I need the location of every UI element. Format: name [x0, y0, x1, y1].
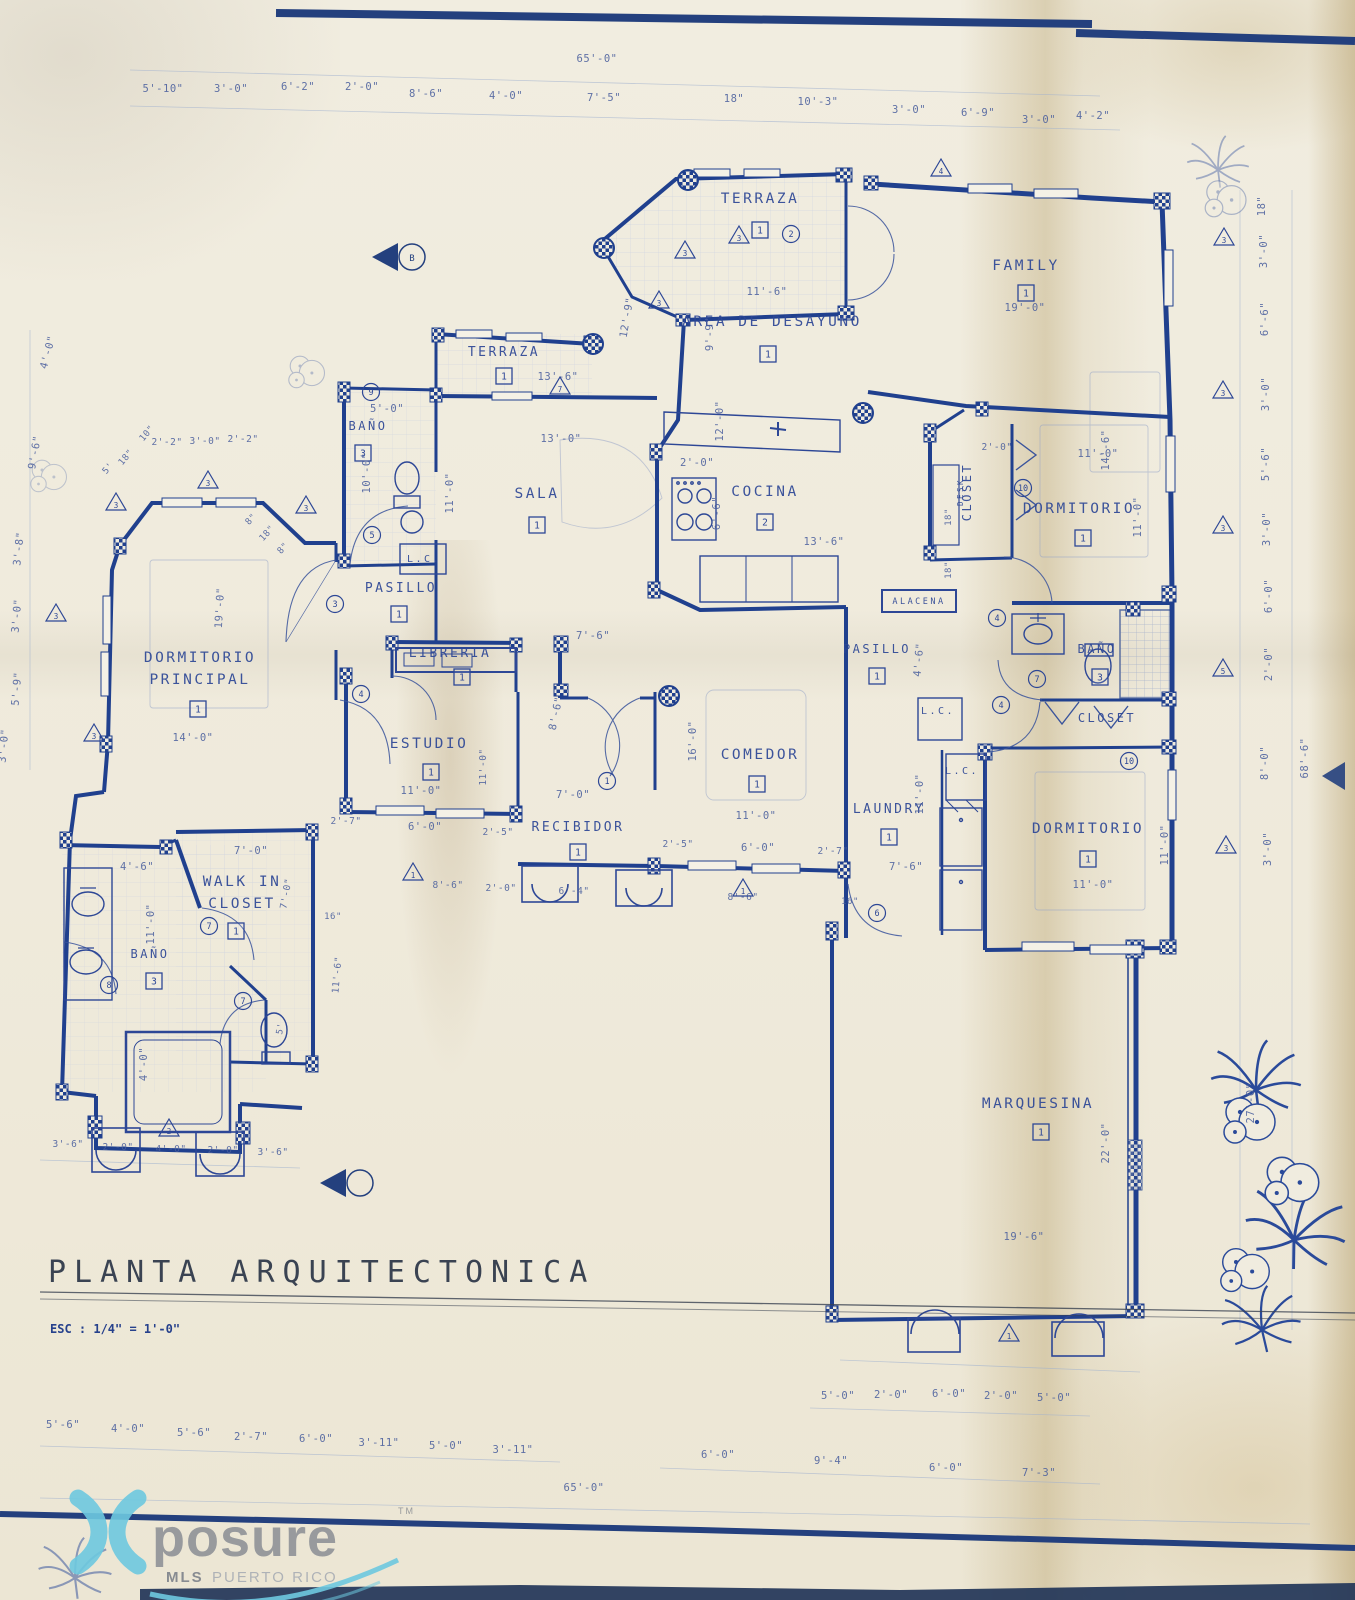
column-marker — [583, 334, 603, 354]
dimension-label: 19'-0" — [213, 587, 227, 629]
dimension-label: 3'-8" — [11, 531, 26, 566]
keynote-triangle-number: 4 — [939, 167, 944, 176]
dimension-label: 11'-0" — [1073, 879, 1114, 891]
room-label: COCINA — [731, 484, 798, 500]
room-label: MARQUESINA — [982, 1096, 1094, 1112]
dimension-label: 6'-0" — [701, 1449, 735, 1461]
stove-icon — [672, 478, 716, 540]
dimension-label: 3'-6" — [257, 1147, 288, 1158]
keynote-triangle-number: 1 — [1007, 1332, 1012, 1341]
keynote-triangle-number: 3 — [304, 504, 309, 513]
keynote-triangle-number: 3 — [92, 732, 97, 741]
dimension-label: 6'-0" — [408, 821, 442, 833]
dimension-label: 65'-0" — [577, 53, 618, 65]
dimension-label: 3'-0" — [10, 598, 25, 633]
room-tag-number: 1 — [396, 610, 402, 621]
room-tag-number: 1 — [765, 350, 771, 361]
page-title: PLANTA ARQUITECTONICA — [48, 1255, 595, 1290]
dimension-label: 18" — [1256, 196, 1268, 216]
dimension-label: 22'-0" — [1100, 1123, 1112, 1164]
dimension-label: 6'-0" — [932, 1388, 966, 1400]
dimension-label: 5'-6" — [177, 1427, 211, 1439]
dimension-label: 2'-5" — [662, 839, 693, 850]
dryer-icon — [940, 870, 982, 930]
keynote-triangle-number: 3 — [1221, 524, 1226, 533]
room-label: PASILLO — [365, 581, 437, 596]
room-tag-number: 1 — [428, 768, 434, 779]
room-tag-number: 1 — [501, 372, 507, 383]
scale-note: ESC : 1/4" = 1'-0" — [50, 1322, 180, 1336]
room-label: COMEDOR — [721, 747, 800, 763]
keynote-triangle-number: 7 — [558, 385, 563, 394]
keynote-circle-number: 7 — [240, 997, 245, 1007]
dimension-label: 19'-6" — [1004, 1231, 1045, 1243]
dimension-label: 11'-0" — [914, 774, 926, 815]
dimension-label: 5'-9" — [10, 671, 25, 706]
keynote-circle-number: 8 — [106, 981, 111, 991]
room-tag-number: 1 — [1080, 534, 1086, 545]
section-letter: B — [409, 254, 414, 264]
room-label: WALK IN — [203, 874, 282, 890]
dimension-label: 12'-0" — [714, 401, 726, 442]
dimension-label: 8'-6" — [409, 88, 443, 100]
column-marker — [853, 403, 873, 423]
dimension-label: 3'-0" — [0, 728, 11, 763]
dimension-label: 6'-9" — [961, 107, 995, 119]
room-label: LIBRERIA — [409, 646, 492, 661]
dimension-label: 18" — [944, 561, 954, 579]
keynote-triangle-number: 3 — [737, 234, 742, 243]
keynote-triangle-number: 3 — [54, 612, 59, 621]
room-tag-number: 3 — [1097, 673, 1103, 684]
room-label: TERRAZA — [468, 345, 540, 360]
dimension-label: 8" — [276, 541, 291, 556]
keynote-circle-number: 10 — [1018, 484, 1028, 494]
keynote-triangle-number: 3 — [114, 501, 119, 510]
dimension-label: 16'-0" — [687, 721, 699, 762]
column-marker — [678, 170, 698, 190]
dimension-label: 3'-0" — [1258, 234, 1270, 268]
dimension-label: 19'-0" — [1005, 302, 1046, 314]
dimension-label: 6'-2" — [281, 81, 315, 93]
room-label: BAÑO — [131, 946, 170, 961]
dimension-label: 8'-6" — [547, 695, 566, 731]
keynote-circle-number: 5 — [369, 531, 374, 541]
room-label: ALACENA — [892, 597, 945, 607]
dimension-label: 13'-0" — [541, 433, 582, 445]
room-label-line2: CLOSET — [208, 896, 275, 912]
keynote-circle-number: 4 — [358, 690, 363, 700]
dimension-label: 2'-0" — [984, 1390, 1018, 1402]
room-tag-number: 1 — [1023, 289, 1029, 300]
dimension-label: 6'-0" — [1263, 579, 1275, 613]
room-label: L.C. — [921, 706, 955, 717]
dimension-label: 10'-3" — [798, 96, 839, 108]
keynote-triangle-number: 2 — [167, 1127, 172, 1136]
dimension-label: 4'-0" — [489, 90, 523, 102]
title-block: PLANTA ARQUITECTONICA ESC : 1/4" = 1'-0" — [40, 1255, 1355, 1336]
dimension-label: 11'-0" — [736, 810, 777, 822]
keynote-circle-number: 2 — [788, 230, 793, 240]
dimension-label: 11'-0" — [478, 748, 489, 785]
dimension-label: 2'-2" — [151, 437, 182, 448]
room-tag-number: 2 — [762, 518, 768, 529]
dimension-label: 3'-0" — [1022, 114, 1056, 126]
dimension-label: 11'-0" — [1078, 448, 1119, 460]
dimension-label: 6'-6" — [1259, 302, 1271, 336]
room-label: SALA — [515, 486, 560, 502]
floor-plan-svg: B TERRAZA1FAMILY1AREA DE DESAYUNO1TERRAZ… — [0, 0, 1355, 1600]
dimension-label: 65'-0" — [564, 1482, 605, 1494]
dimension-label: 5'-0" — [429, 1440, 463, 1452]
dimension-label: 11'-0" — [1132, 497, 1144, 538]
keynote-triangle-number: 1 — [411, 871, 416, 880]
dimension-label: 2'-5" — [482, 827, 513, 838]
keynote-triangle-number: 3 — [1224, 844, 1229, 853]
dimension-label: 8'-6" — [432, 880, 463, 891]
room-label: CLOSET — [1078, 711, 1136, 725]
dimension-label: 9'-4" — [814, 1455, 848, 1467]
room-tag-number: 1 — [757, 226, 763, 237]
dimension-label: 5'-0" — [1037, 1392, 1071, 1404]
room-tag-number: 3 — [151, 977, 157, 988]
dimension-label: 16" — [841, 897, 859, 907]
keynote-circle-number: 3 — [332, 600, 337, 610]
sheet-border-top — [276, 13, 1355, 41]
dimension-label: 6'-0" — [741, 842, 775, 854]
dimension-label: 2'-7" — [330, 816, 361, 827]
room-tag-number: 1 — [534, 521, 540, 532]
keynote-triangle-number: 3 — [683, 249, 688, 258]
keynote-triangle-number: 5 — [1221, 667, 1226, 676]
keynote-circle-number: 1 — [604, 777, 609, 787]
room-label: L.C. — [407, 554, 441, 565]
dimension-label: 8" — [244, 512, 259, 527]
keynote-triangle-number: 3 — [657, 299, 662, 308]
dimension-label: 7'-3" — [1022, 1467, 1056, 1479]
room-label: FAMILY — [992, 258, 1059, 274]
dimension-label: 2'-7" — [234, 1431, 268, 1443]
dimension-label: 2'-0" — [102, 1142, 133, 1153]
dimension-label: 18" — [117, 448, 136, 468]
sink-icon — [1024, 624, 1052, 644]
xposure-x-icon — [78, 1498, 99, 1566]
dimension-label: 10'-0" — [361, 453, 373, 494]
dimension-label: 5' — [275, 1022, 287, 1035]
dimension-label: 5'-0" — [370, 403, 404, 415]
dimension-label: 12'-9" — [618, 296, 637, 338]
room-tag-number: 1 — [233, 927, 239, 938]
dimension-label: 68'-6" — [1299, 738, 1311, 779]
dimension-label: 7'-0" — [556, 789, 590, 801]
dimension-label: 4'-6" — [120, 861, 154, 873]
dimension-label: 6'-0" — [929, 1462, 963, 1474]
dimension-label: 11'-6" — [747, 286, 788, 298]
dimension-label: 27'-0" — [1245, 1083, 1257, 1124]
keynote-circle-number: 6 — [874, 909, 879, 919]
dimension-label: 4'-2" — [1076, 110, 1110, 122]
watermark-mls: MLS — [166, 1569, 204, 1586]
dimension-label: 3'-0" — [892, 104, 926, 116]
dimension-label: 2'-0" — [207, 1145, 238, 1156]
dimension-label: 4'-0" — [138, 1047, 150, 1081]
dimension-label: 11'-0" — [401, 785, 442, 797]
room-tag-number: 1 — [195, 705, 201, 716]
dimension-label: 2'-0" — [485, 883, 516, 894]
keynote-triangle-number: 1 — [741, 887, 746, 896]
dimension-label: 9'-9" — [704, 317, 716, 351]
dimension-label: 3'-0" — [189, 436, 220, 447]
dimension-label: 8'-0" — [1259, 746, 1271, 780]
dimension-label: 3'-0" — [1261, 512, 1273, 546]
dimension-label: 5' — [101, 461, 116, 477]
keynote-circle-number: 9 — [368, 388, 373, 398]
dimension-label: 16" — [324, 912, 342, 922]
keynote-circle-number: 4 — [998, 701, 1003, 711]
dimension-label: 5'-10" — [143, 83, 184, 95]
dimension-label: 13'-6" — [804, 536, 845, 548]
dimension-label: 2'-0" — [1263, 647, 1275, 681]
dimension-label: 7'-5" — [587, 92, 621, 104]
keynote-triangle-number: 3 — [1221, 389, 1226, 398]
dimension-label: 3'-11" — [493, 1444, 534, 1456]
room-label: BAÑO — [1078, 641, 1117, 656]
dimension-label: 11'-0" — [1159, 825, 1171, 866]
dimension-label: 3'-6" — [52, 1139, 83, 1150]
room-tag-number: 1 — [886, 833, 892, 844]
dimension-label: 11'-0" — [444, 473, 456, 514]
dimension-label: 2'-0" — [874, 1389, 908, 1401]
room-label-line2: PRINCIPAL — [149, 672, 250, 688]
room-label: L.C. — [945, 766, 979, 777]
dimension-label: 3'-0" — [1262, 832, 1274, 866]
dimension-label: 2'-0" — [981, 442, 1012, 453]
dimension-label: 11'-0" — [145, 904, 157, 945]
watermark-region: PUERTO RICO — [212, 1569, 338, 1586]
dimension-label: 4'-0" — [155, 1144, 186, 1155]
dimension-label: 6'-6" — [711, 496, 723, 530]
room-tag-number: 1 — [575, 848, 581, 859]
dimension-label: 18" — [724, 93, 744, 105]
room-label: DORMITORIO — [144, 650, 256, 666]
dimension-label: 5'-6" — [1260, 447, 1272, 481]
faucet-icon — [770, 422, 786, 436]
counter — [664, 412, 840, 452]
dimension-label: 3'-11" — [359, 1437, 400, 1449]
dimension-label: 6'-4" — [558, 886, 589, 897]
dimension-label: 18" — [944, 508, 954, 526]
keynote-circle-number: 4 — [994, 614, 999, 624]
room-tag-number: 1 — [1038, 1128, 1044, 1139]
dimension-label: 14'-0" — [173, 732, 214, 744]
dimension-label: 7'-6" — [889, 861, 923, 873]
room-tag-number: 1 — [459, 673, 465, 684]
room-label: DORMITORIO — [1023, 501, 1135, 517]
dimension-label: 11'-6" — [330, 956, 344, 994]
dimension-label: 4'-0" — [38, 334, 58, 370]
room-label: ESTUDIO — [390, 736, 469, 752]
dimension-label: 2'-2" — [227, 434, 258, 445]
keynote-circle-number: 7 — [1034, 675, 1039, 685]
room-label: DESK — [956, 478, 965, 506]
keynote-circle-number: 10 — [1124, 757, 1134, 767]
room-label: PASILLO — [843, 642, 911, 656]
dimension-label: 4'-6" — [912, 642, 927, 677]
dimension-label: 7'-0" — [234, 845, 268, 857]
watermark-brand: posure — [152, 1508, 338, 1568]
keynote-triangle-number: 3 — [206, 479, 211, 488]
dimension-label: 6'-0" — [299, 1433, 333, 1445]
blueprint-photo: { "page": { "title": "PLANTA ARQUITECTON… — [0, 0, 1355, 1600]
dimension-label: 3'-0" — [1260, 377, 1272, 411]
room-tag-number: 1 — [754, 780, 760, 791]
room-label: DORMITORIO — [1032, 821, 1144, 837]
room-label: TERRAZA — [721, 191, 800, 207]
keynote-triangle-number: 3 — [1222, 236, 1227, 245]
room-tag-number: 1 — [874, 672, 880, 683]
watermark-logo: posure TM MLS PUERTO RICO — [78, 1498, 415, 1600]
dimension-label: 18" — [258, 524, 277, 544]
column-marker — [659, 686, 679, 706]
room-tag-number: 1 — [1085, 855, 1091, 866]
keynote-circle-number: 7 — [206, 922, 211, 932]
dimension-label: 7'-6" — [576, 630, 610, 642]
room-label: RECIBIDOR — [532, 820, 625, 835]
dimension-label: 2'-0" — [680, 457, 714, 469]
dimension-label: 2'-0" — [345, 81, 379, 93]
dimension-label: 5'-0" — [821, 1390, 855, 1402]
dimension-label: 4'-0" — [111, 1423, 145, 1435]
dimension-label: 3'-0" — [214, 83, 248, 95]
column-marker — [594, 238, 614, 258]
watermark-tm: TM — [398, 1506, 415, 1516]
washer-icon — [940, 808, 982, 866]
dimension-label: 2'-7" — [817, 846, 848, 857]
room-label: BAÑO — [349, 418, 388, 433]
dimension-label: 5'-6" — [46, 1419, 80, 1431]
